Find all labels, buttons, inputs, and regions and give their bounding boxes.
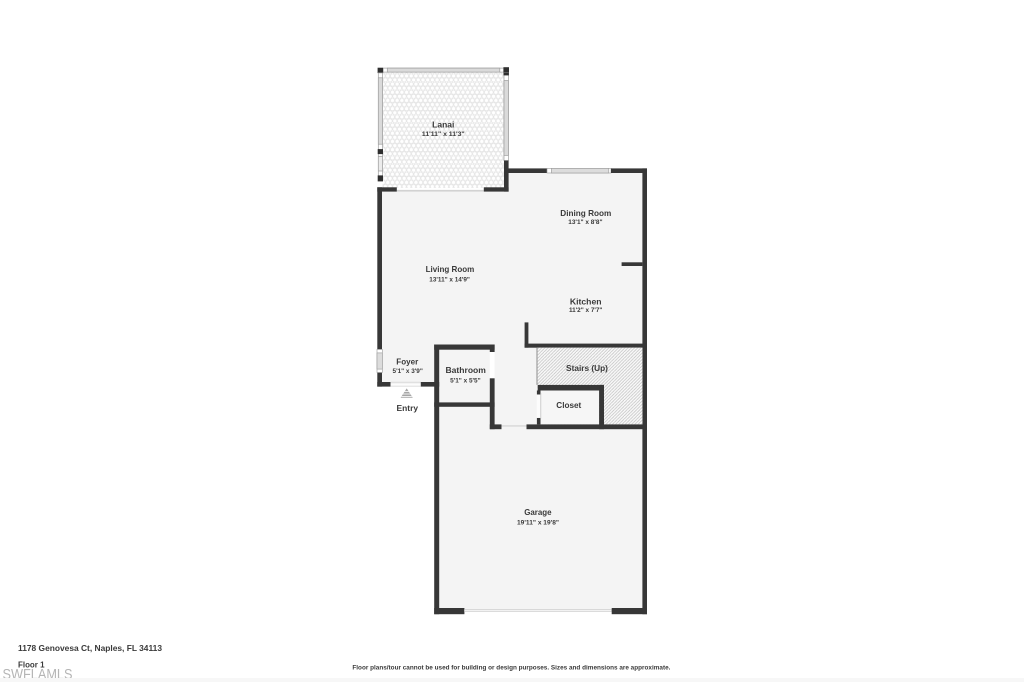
- svg-text:5'1" x 3'9": 5'1" x 3'9": [393, 368, 423, 375]
- svg-text:19'11" x 19'8": 19'11" x 19'8": [517, 520, 559, 527]
- svg-text:13'1" x 8'8": 13'1" x 8'8": [568, 219, 602, 226]
- svg-text:Kitchen: Kitchen: [570, 297, 602, 307]
- svg-text:1178 Genovesa Ct, Naples, FL 3: 1178 Genovesa Ct, Naples, FL 34113: [18, 644, 162, 653]
- svg-text:13'11" x 14'9": 13'11" x 14'9": [429, 276, 470, 283]
- svg-text:Foyer: Foyer: [396, 356, 419, 366]
- svg-text:Floor plans/tour cannot be use: Floor plans/tour cannot be used for buil…: [352, 664, 670, 671]
- svg-text:Lanai: Lanai: [432, 120, 454, 130]
- svg-text:5'1" x 5'5": 5'1" x 5'5": [450, 378, 481, 385]
- svg-text:Dining Room: Dining Room: [560, 208, 611, 218]
- svg-text:Garage: Garage: [524, 507, 552, 517]
- svg-text:Closet: Closet: [556, 400, 581, 410]
- svg-text:Living Room: Living Room: [426, 264, 475, 274]
- svg-text:Bathroom: Bathroom: [446, 365, 486, 375]
- svg-text:Entry: Entry: [397, 403, 419, 413]
- svg-text:Stairs (Up): Stairs (Up): [566, 363, 608, 373]
- svg-text:11'2" x 7'7": 11'2" x 7'7": [569, 307, 603, 314]
- svg-text:11'11" x 11'3": 11'11" x 11'3": [422, 131, 465, 138]
